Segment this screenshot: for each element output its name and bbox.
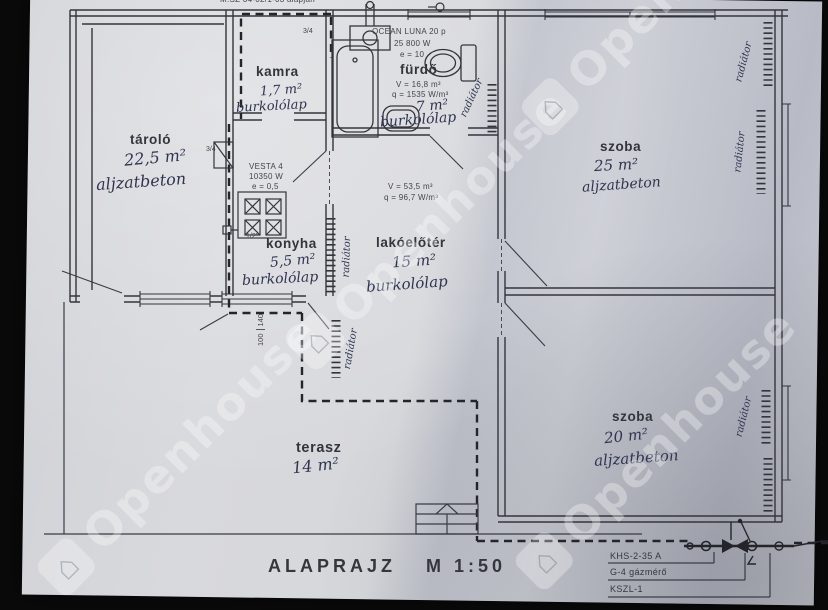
gas-fitting-meter: G-4 gázmérő — [610, 567, 667, 577]
stove-factor: e = 0,5 — [252, 182, 279, 191]
stove-power: 10350 W — [249, 172, 283, 181]
room-name-furdo: fürdő — [400, 62, 438, 77]
floorplan-drawing: M.SZ 04-02/1-03 alapján OCEAN LUNA 20 p … — [0, 0, 828, 610]
furdo-volume: V = 16,8 m³ — [396, 80, 441, 89]
boiler-power: 25 800 W — [394, 39, 431, 48]
drawing-title: ALAPRAJZ M 1:50 — [268, 556, 506, 577]
lakoeloter-heatload: q = 96,7 W/m³ — [384, 193, 438, 202]
stove-model: VESTA 4 — [249, 162, 283, 171]
gas-fitting-kszl: KSZL-1 — [610, 584, 643, 594]
pipe-size-12: 1/2" — [246, 233, 258, 240]
windows — [140, 9, 791, 480]
room-name-lakoeloter: lakóelőtér — [376, 235, 446, 250]
room-name-kamra: kamra — [256, 64, 299, 79]
pipe-size-34-bath: 3/4 — [303, 28, 313, 35]
radiator-label-konyha: radiátor — [341, 236, 353, 277]
room-name-szoba-felso: szoba — [600, 139, 641, 154]
boiler-model: OCEAN LUNA 20 p — [372, 27, 446, 36]
door-dimension-height: 140 — [256, 314, 265, 331]
room-name-konyha: konyha — [266, 236, 317, 251]
szoba-felso-area: 25 m² — [594, 155, 639, 175]
room-name-szoba-also: szoba — [612, 409, 653, 424]
terrace-boundary — [44, 302, 642, 534]
gas-fitting-khs: KHS-2-35 A — [610, 551, 662, 561]
water-heater-icon — [350, 2, 390, 51]
lakoeloter-area: 15 m² — [391, 250, 436, 271]
bathtub-icon — [332, 40, 378, 137]
door-dimension-width: 100 — [256, 333, 265, 346]
door-dimension: 100 140 — [256, 314, 265, 346]
terrace-steps — [416, 504, 478, 534]
pipe-size-34-chimney: 3/4 — [206, 146, 216, 153]
boiler-factor: e = 10 — [400, 50, 424, 59]
scanned-floorplan-photo: M.SZ 04-02/1-03 alapján OCEAN LUNA 20 p … — [0, 0, 828, 610]
document-note: M.SZ 04-02/1-03 alapján — [220, 0, 315, 4]
drawing-scale: M 1:50 — [426, 556, 506, 577]
lakoeloter-volume: V = 53,5 m³ — [388, 182, 433, 191]
drawing-title-text: ALAPRAJZ — [268, 556, 396, 577]
room-name-tarolo: tároló — [130, 132, 171, 147]
